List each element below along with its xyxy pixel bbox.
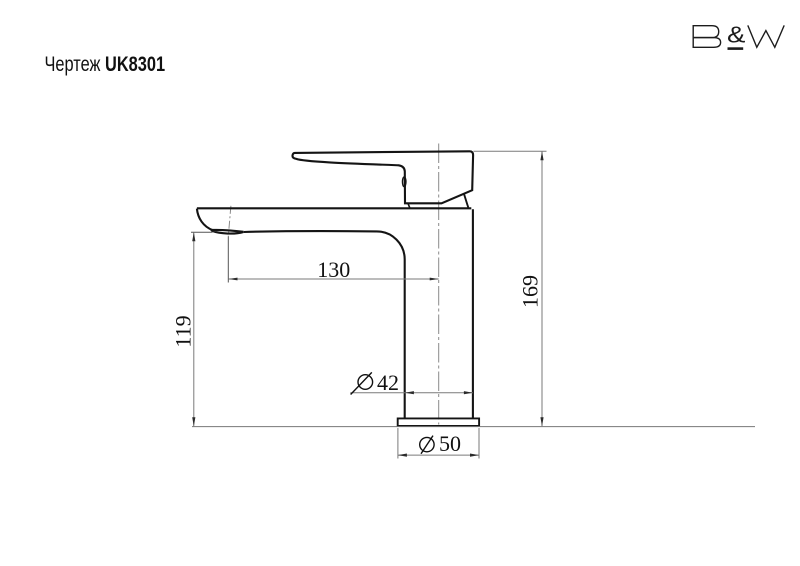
- svg-text:42: 42: [377, 370, 399, 395]
- svg-text:169: 169: [517, 275, 542, 308]
- svg-text:119: 119: [171, 315, 196, 347]
- svg-text:130: 130: [317, 257, 350, 282]
- svg-text:50: 50: [439, 431, 461, 456]
- svg-text:Чертеж UK8301: Чертеж UK8301: [45, 52, 166, 75]
- svg-text:&: &: [727, 22, 745, 47]
